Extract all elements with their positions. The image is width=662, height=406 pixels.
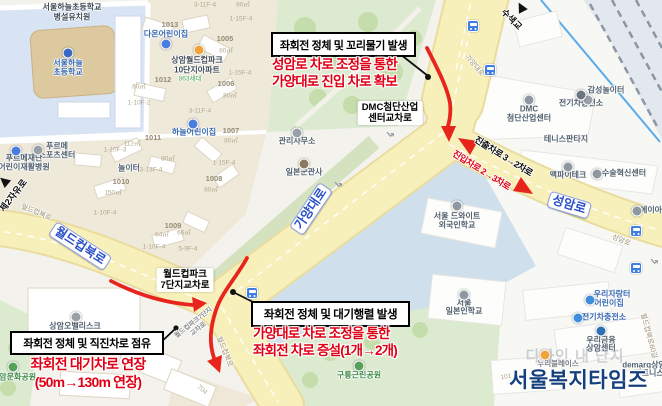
map-canvas [0, 0, 662, 406]
annotated-map-screenshot: 서울하늘초등학교병설유치원서울하늘초등학교다온어린이집1013상암월드컵파크10… [0, 0, 662, 406]
